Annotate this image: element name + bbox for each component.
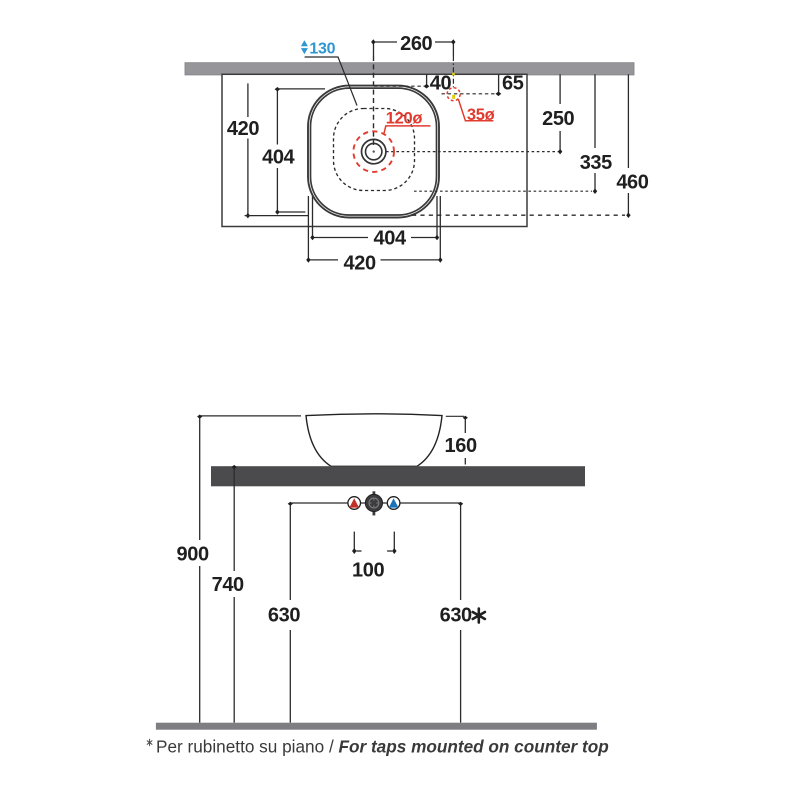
svg-text:250: 250 xyxy=(542,108,574,130)
svg-text:630: 630 xyxy=(440,605,472,627)
svg-text:Per rubinetto su piano / For t: Per rubinetto su piano / For taps mounte… xyxy=(156,737,609,757)
svg-text:335: 335 xyxy=(580,152,612,174)
svg-text:420: 420 xyxy=(227,118,259,140)
svg-text:65: 65 xyxy=(502,73,524,95)
svg-text:460: 460 xyxy=(616,171,648,193)
svg-text:420: 420 xyxy=(344,252,376,274)
svg-text:404: 404 xyxy=(374,227,407,249)
svg-text:404: 404 xyxy=(262,147,295,169)
svg-text:35ø: 35ø xyxy=(467,106,495,124)
svg-text:160: 160 xyxy=(445,435,477,457)
svg-text:100: 100 xyxy=(352,560,384,582)
svg-text:260: 260 xyxy=(400,33,432,55)
svg-text:120ø: 120ø xyxy=(386,109,423,127)
svg-text:130: 130 xyxy=(309,40,335,57)
svg-text:630: 630 xyxy=(268,605,300,627)
svg-text:900: 900 xyxy=(177,543,209,565)
svg-text:740: 740 xyxy=(212,574,244,596)
